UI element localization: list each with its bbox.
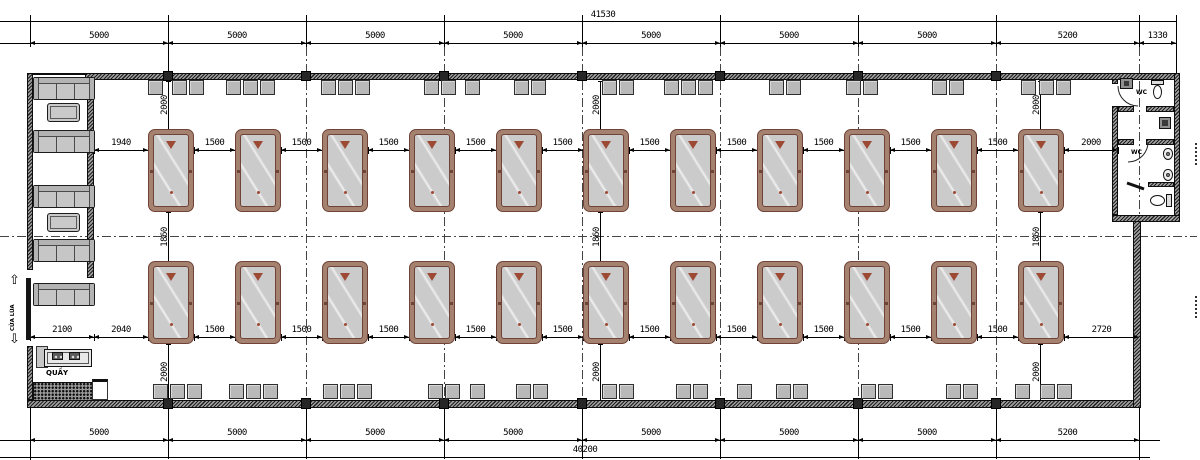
sofa-arm	[34, 240, 39, 261]
spot-marker	[518, 191, 521, 194]
dim-arrow-left-icon	[858, 438, 863, 442]
stool	[619, 384, 634, 399]
rail-diamond	[585, 302, 588, 305]
dim-label: 1500	[633, 138, 667, 148]
column-marker	[715, 398, 725, 409]
spot-marker	[953, 323, 956, 326]
dim-arrow-left-icon	[194, 148, 199, 152]
dim-arrow-left-icon	[977, 148, 982, 152]
column-marker	[853, 398, 863, 409]
rack-triangle-icon	[514, 141, 524, 149]
sofa-back	[34, 186, 94, 192]
spot-marker	[692, 323, 695, 326]
dim-label: 5000	[772, 428, 806, 438]
dim-arrow-left-icon	[858, 41, 863, 45]
stool	[428, 384, 443, 399]
rail-diamond	[1020, 302, 1023, 305]
pool-table	[931, 129, 977, 212]
extension-line	[720, 408, 721, 459]
rail-diamond	[189, 302, 192, 305]
sofa	[33, 239, 95, 262]
stool	[445, 384, 460, 399]
sofa-seam	[74, 192, 75, 207]
rack-triangle-icon	[427, 141, 437, 149]
stool	[963, 384, 978, 399]
sofa-arm	[89, 240, 94, 261]
rail-diamond	[450, 302, 453, 305]
rail-diamond	[150, 302, 153, 305]
stool	[357, 384, 372, 399]
spot-marker	[518, 323, 521, 326]
extension-line	[858, 15, 859, 44]
counter-machine	[52, 352, 63, 360]
dim-arrow-left-icon	[1064, 335, 1069, 339]
rail-diamond	[363, 170, 366, 173]
rail-diamond	[411, 170, 414, 173]
dim-label: 1500	[546, 138, 580, 148]
dim-arrow-left-icon	[94, 335, 99, 339]
rail-diamond	[411, 302, 414, 305]
extension-line	[168, 15, 169, 44]
rail-diamond	[237, 170, 240, 173]
stool	[246, 384, 261, 399]
spot-marker	[344, 323, 347, 326]
sofa-seam	[74, 290, 75, 305]
dim-label: 1500	[981, 138, 1015, 148]
dim-arrow-left-icon	[368, 148, 373, 152]
stool	[340, 384, 355, 399]
rail-diamond	[885, 170, 888, 173]
column-marker	[301, 71, 311, 81]
dim-arrow-left-icon	[720, 41, 725, 45]
stool	[338, 80, 353, 95]
sofa-seam	[56, 137, 57, 152]
dim-arrow-left-icon	[30, 41, 35, 45]
rail-diamond	[846, 302, 849, 305]
stool	[355, 80, 370, 95]
dim-tick	[1038, 344, 1043, 345]
coffee-table	[47, 213, 80, 232]
spot-marker	[431, 191, 434, 194]
stool	[878, 384, 893, 399]
dim-arrow-left-icon	[1064, 148, 1069, 152]
dim-arrow-left-icon	[306, 438, 311, 442]
rail-diamond	[1059, 170, 1062, 173]
rail-diamond	[189, 170, 192, 173]
dim-total-top: 41530	[575, 10, 631, 20]
dim-arrow-left-icon	[803, 148, 808, 152]
dim-label: 1500	[459, 325, 493, 335]
dim-arrow-left-icon	[1139, 41, 1144, 45]
rail-diamond	[672, 302, 675, 305]
rail-diamond	[276, 302, 279, 305]
rail-diamond	[237, 302, 240, 305]
dim-arrow-left-icon	[629, 335, 634, 339]
dim-label: 2000	[592, 358, 602, 386]
sofa-arm	[89, 131, 94, 152]
pool-table	[235, 129, 281, 212]
rack-triangle-icon	[949, 273, 959, 281]
rail-diamond	[1020, 170, 1023, 173]
rail-diamond	[846, 170, 849, 173]
dim-label: 1860	[1032, 223, 1042, 251]
dim-label: 5200	[1051, 31, 1085, 41]
dim-arrow-left-icon	[194, 335, 199, 339]
sofa-back	[34, 240, 94, 246]
stool	[602, 384, 617, 399]
extension-line	[444, 15, 445, 44]
rack-triangle-icon	[1036, 273, 1046, 281]
stool	[846, 80, 861, 95]
column-marker	[439, 398, 449, 409]
dim-label: 1500	[198, 138, 232, 148]
rail-diamond	[324, 302, 327, 305]
wall-segment	[85, 73, 1180, 80]
column-marker	[991, 398, 1001, 409]
sofa-arm	[34, 78, 39, 99]
stool	[769, 80, 784, 95]
sofa-back	[34, 78, 94, 84]
slide-arrow-up-icon: ⇧	[9, 274, 20, 287]
rack-triangle-icon	[253, 273, 263, 281]
rail-diamond	[276, 170, 279, 173]
dim-label: 2000	[1032, 358, 1042, 386]
pool-table	[670, 261, 716, 344]
stool	[465, 80, 480, 95]
pool-table	[148, 129, 194, 212]
rail-diamond	[711, 170, 714, 173]
dim-label: 2000	[1074, 138, 1108, 148]
extension-line	[306, 408, 307, 459]
rack-triangle-icon	[601, 141, 611, 149]
extension-line	[1176, 44, 1177, 73]
wc-door-arcs	[1112, 79, 1180, 224]
dim-label: 5000	[634, 428, 668, 438]
dim-arrow-left-icon	[996, 438, 1001, 442]
stool	[187, 384, 202, 399]
rack-triangle-icon	[166, 141, 176, 149]
dim-arrow-left-icon	[455, 335, 460, 339]
stool	[229, 384, 244, 399]
rail-diamond	[759, 302, 762, 305]
spot-marker	[344, 191, 347, 194]
door-pier	[92, 379, 108, 400]
rail-diamond	[972, 302, 975, 305]
stool	[664, 80, 679, 95]
rack-triangle-icon	[862, 273, 872, 281]
dim-arrow-left-icon	[542, 335, 547, 339]
spot-marker	[692, 191, 695, 194]
dim-arrow-left-icon	[168, 41, 173, 45]
dim-label: 1500	[894, 138, 928, 148]
stool	[1040, 384, 1055, 399]
stool	[516, 384, 531, 399]
stool	[1015, 384, 1030, 399]
dim-arrow-left-icon	[582, 41, 587, 45]
dim-arrow-left-icon	[281, 335, 286, 339]
spot-marker	[257, 323, 260, 326]
stool	[1056, 80, 1071, 95]
dim-label: 5000	[220, 31, 254, 41]
stool	[863, 80, 878, 95]
dim-label: 1500	[459, 138, 493, 148]
extension-line	[30, 408, 31, 459]
sliding-door-label: CỬA LÙA	[11, 293, 17, 331]
rail-diamond	[498, 170, 501, 173]
extension-line	[858, 408, 859, 459]
rail-diamond	[498, 302, 501, 305]
dim-arrow-left-icon	[582, 438, 587, 442]
pool-table	[148, 261, 194, 344]
rail-diamond	[150, 170, 153, 173]
stool	[619, 80, 634, 95]
dim-arrow-left-icon	[542, 148, 547, 152]
sofa	[33, 283, 95, 306]
stool	[949, 80, 964, 95]
extension-line	[720, 15, 721, 44]
dim-tick	[166, 81, 171, 82]
dim-label: 1330	[1141, 31, 1175, 41]
dim-arrow-left-icon	[716, 148, 721, 152]
extension-line	[444, 408, 445, 459]
dim-arrow-left-icon	[996, 41, 1001, 45]
dim-label: 5000	[910, 428, 944, 438]
rail-diamond	[933, 302, 936, 305]
pool-table	[670, 129, 716, 212]
spot-marker	[1040, 191, 1043, 194]
dim-label: 1500	[198, 325, 232, 335]
rail-diamond	[537, 302, 540, 305]
spot-marker	[866, 323, 869, 326]
stool	[424, 80, 439, 95]
dim-arrow-left-icon	[168, 438, 173, 442]
stool	[861, 384, 876, 399]
dim-arrow-left-icon	[368, 335, 373, 339]
rail-diamond	[537, 170, 540, 173]
dim-arrow-left-icon	[629, 148, 634, 152]
dim-label: 1860	[592, 223, 602, 251]
sofa-seam	[56, 246, 57, 261]
dim-label: 1500	[546, 325, 580, 335]
stool	[681, 80, 696, 95]
dim-total-bottom: 40200	[557, 445, 613, 455]
counter-label: QUẦY	[46, 370, 68, 377]
dim-label: 1500	[633, 325, 667, 335]
dim-label: 5000	[634, 31, 668, 41]
stool	[263, 384, 278, 399]
extension-line	[1139, 408, 1140, 459]
sofa-arm	[34, 131, 39, 152]
sofa-back	[34, 284, 94, 290]
rail-diamond	[972, 170, 975, 173]
sofa	[33, 185, 95, 208]
dim-label: 5000	[220, 428, 254, 438]
dim-label: 1500	[981, 325, 1015, 335]
spot-marker	[170, 191, 173, 194]
dim-arrow-left-icon	[890, 335, 895, 339]
dim-label: 1500	[894, 325, 928, 335]
extension-line	[168, 408, 169, 459]
column-marker	[577, 71, 587, 81]
sofa	[33, 130, 95, 153]
dim-arrow-left-icon	[455, 148, 460, 152]
dim-arrow-right-icon	[1171, 41, 1176, 45]
clipped-dimension-mark	[1195, 143, 1197, 165]
stool	[737, 384, 752, 399]
rack-triangle-icon	[949, 141, 959, 149]
rail-diamond	[624, 170, 627, 173]
stool	[932, 80, 947, 95]
stool	[243, 80, 258, 95]
pool-table	[322, 261, 368, 344]
spot-marker	[431, 323, 434, 326]
dim-arrow-left-icon	[281, 148, 286, 152]
rail-diamond	[363, 302, 366, 305]
rack-triangle-icon	[253, 141, 263, 149]
pool-table	[757, 261, 803, 344]
clipped-dimension-mark	[1195, 296, 1197, 318]
spot-marker	[779, 323, 782, 326]
slide-arrow-down-icon: ⇩	[9, 333, 20, 346]
rack-triangle-icon	[166, 273, 176, 281]
rail-diamond	[1059, 302, 1062, 305]
pool-table	[409, 261, 455, 344]
sofa-seam	[56, 192, 57, 207]
dim-label: 1500	[285, 138, 319, 148]
pool-table	[496, 129, 542, 212]
dimension-line	[0, 21, 1176, 22]
rack-triangle-icon	[601, 273, 611, 281]
dim-label: 2000	[160, 91, 170, 119]
dim-label: 2720	[1085, 325, 1119, 335]
extension-line	[1176, 15, 1177, 44]
extension-line	[306, 15, 307, 44]
dim-label: 5000	[772, 31, 806, 41]
rack-triangle-icon	[862, 141, 872, 149]
dim-label: 5200	[1051, 428, 1085, 438]
dim-label: 5000	[358, 428, 392, 438]
pool-table	[1018, 129, 1064, 212]
pool-table	[583, 129, 629, 212]
dim-tick	[1038, 212, 1043, 213]
dim-label: 2100	[45, 325, 79, 335]
dim-label: 5000	[82, 31, 116, 41]
counter-machine	[69, 352, 80, 360]
rack-triangle-icon	[340, 141, 350, 149]
sofa-seam	[74, 246, 75, 261]
stool	[153, 384, 168, 399]
dim-tick	[598, 212, 603, 213]
dim-label: 5000	[910, 31, 944, 41]
pool-table	[844, 129, 890, 212]
rack-triangle-icon	[427, 273, 437, 281]
stool	[776, 384, 791, 399]
dim-label: 1500	[807, 138, 841, 148]
dim-arrow-left-icon	[444, 438, 449, 442]
pool-table	[235, 261, 281, 344]
column-marker	[163, 398, 173, 409]
dim-arrow-left-icon	[716, 335, 721, 339]
dim-arrow-left-icon	[977, 335, 982, 339]
stool	[693, 384, 708, 399]
stool	[470, 384, 485, 399]
coffee-table	[47, 103, 80, 122]
rail-diamond	[324, 170, 327, 173]
column-marker	[301, 398, 311, 409]
dim-label: 5000	[82, 428, 116, 438]
wc-label-1: WC	[1136, 90, 1147, 96]
stool	[793, 384, 808, 399]
rack-triangle-icon	[340, 273, 350, 281]
dim-label: 1940	[104, 138, 138, 148]
pool-table	[583, 261, 629, 344]
spot-marker	[779, 191, 782, 194]
sofa-seam	[74, 137, 75, 152]
dim-arrow-left-icon	[30, 438, 35, 442]
rail-diamond	[624, 302, 627, 305]
stool	[441, 80, 456, 95]
dim-tick	[166, 344, 171, 345]
dim-arrow-left-icon	[720, 438, 725, 442]
stool	[676, 384, 691, 399]
wc-label-2: WC	[1131, 150, 1142, 156]
door-arc	[1118, 86, 1138, 106]
dim-arrow-left-icon	[890, 148, 895, 152]
sofa-seam	[56, 290, 57, 305]
rail-diamond	[585, 170, 588, 173]
dimension-line	[0, 457, 1150, 458]
stool	[786, 80, 801, 95]
rail-diamond	[450, 170, 453, 173]
sofa-arm	[89, 78, 94, 99]
stool	[226, 80, 241, 95]
spot-marker	[953, 191, 956, 194]
spot-marker	[605, 323, 608, 326]
sofa-back	[34, 131, 94, 137]
extension-line	[30, 15, 31, 44]
extension-line	[996, 408, 997, 459]
column-marker	[715, 71, 725, 81]
stool	[514, 80, 529, 95]
sofa-arm	[34, 186, 39, 207]
sofa-arm	[89, 186, 94, 207]
rack-triangle-icon	[514, 273, 524, 281]
dim-arrow-left-icon	[444, 41, 449, 45]
dim-label: 1860	[160, 223, 170, 251]
dim-label: 1500	[372, 138, 406, 148]
column-marker	[577, 398, 587, 409]
dim-arrow-left-icon	[803, 335, 808, 339]
sofa-seam	[74, 84, 75, 99]
stool	[321, 80, 336, 95]
dim-label: 1500	[720, 138, 754, 148]
dim-label: 1500	[372, 325, 406, 335]
dim-arrow-right-icon	[1134, 438, 1139, 442]
rack-triangle-icon	[775, 141, 785, 149]
spot-marker	[257, 191, 260, 194]
dim-tick	[166, 212, 171, 213]
stool	[1057, 384, 1072, 399]
rail-diamond	[885, 302, 888, 305]
floor-plan: 41530 40200 QUẦY CỬA LÙA WC WC ⇧ ⇩ 50005…	[0, 0, 1200, 460]
dim-label: 5000	[496, 428, 530, 438]
dim-label: 5000	[496, 31, 530, 41]
sofa-arm	[89, 284, 94, 305]
rail-diamond	[711, 302, 714, 305]
rail-diamond	[798, 302, 801, 305]
dim-label: 2000	[1032, 91, 1042, 119]
stool	[172, 80, 187, 95]
